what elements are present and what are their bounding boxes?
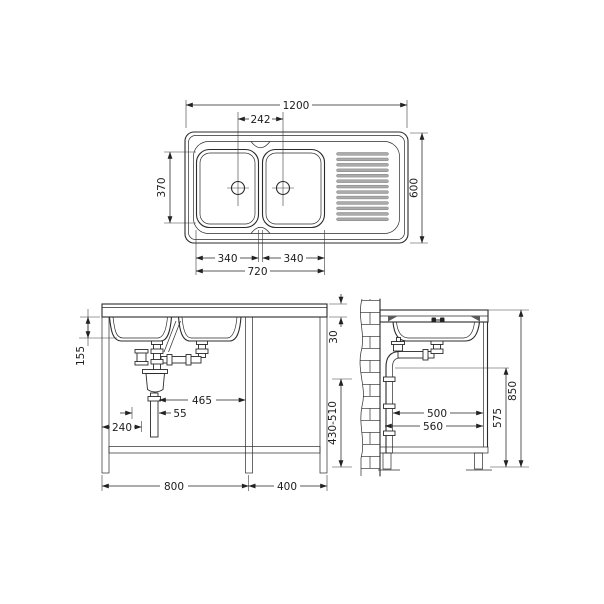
dim-bowl-height: 155 <box>75 309 117 366</box>
dim-label-340-left: 340 <box>217 253 237 265</box>
dim-label-560: 560 <box>423 421 443 433</box>
plan-view: 1200 242 370 600 340 <box>156 99 428 279</box>
dim-plan-width: 1200 <box>186 99 407 129</box>
bottle-trap <box>146 374 165 393</box>
dim-bowl-widths: 340 340 720 <box>196 230 325 278</box>
dim-label-370: 370 <box>156 177 168 197</box>
front-worktop <box>102 304 327 317</box>
front-bottom-shelf <box>109 447 320 454</box>
rim-waist-bottom <box>251 227 270 233</box>
drainboard-ribs <box>337 153 389 221</box>
dim-label-800: 800 <box>164 481 184 493</box>
side-plinth-leg-right <box>475 453 483 469</box>
dim-plan-depth: 600 <box>409 133 429 243</box>
side-view: 500 560 575 850 <box>360 299 529 476</box>
side-plinth-leg-left <box>383 453 391 469</box>
dim-trap-wall-distance: 240 <box>102 421 142 434</box>
dim-label-242: 242 <box>250 114 270 126</box>
front-plumbing <box>135 321 208 437</box>
dim-label-400: 400 <box>277 481 297 493</box>
dim-cabinet-widths: 800 400 <box>102 475 327 493</box>
side-bowl <box>393 322 480 341</box>
rim-clamp-right <box>471 317 480 322</box>
side-plumbing <box>384 338 444 454</box>
dim-label-600: 600 <box>409 178 421 198</box>
side-bottom-shelf <box>380 447 488 453</box>
front-divider-panel <box>246 317 253 473</box>
trap-flange <box>143 370 168 374</box>
front-right-side-panel <box>320 317 327 473</box>
left-bowl <box>197 150 259 228</box>
dim-label-1200: 1200 <box>283 100 310 112</box>
front-bowls <box>110 317 242 341</box>
left-tailpiece <box>154 345 161 371</box>
dim-label-720: 720 <box>247 266 267 278</box>
dim-label-430-510: 430-510 <box>327 401 339 445</box>
dim-label-465: 465 <box>192 395 212 407</box>
right-bowl-inner <box>266 153 321 224</box>
dim-rim-height: 30 <box>328 294 347 344</box>
dim-worktop-height: 850 <box>470 310 529 467</box>
sink-installation-drawing: 1200 242 370 600 340 <box>0 0 604 604</box>
rim-waist-top <box>251 142 270 148</box>
dim-label-340-right: 340 <box>283 253 303 265</box>
front-left-side-panel <box>102 317 109 473</box>
technical-drawing-page: 1200 242 370 600 340 <box>0 0 604 604</box>
overflow-elbow <box>137 352 146 362</box>
right-bowl <box>263 150 325 228</box>
front-view: 155 30 465 55 240 <box>75 294 352 493</box>
dim-label-575: 575 <box>492 408 504 428</box>
vent-valve <box>394 344 403 351</box>
tap-holes <box>227 112 294 206</box>
dim-label-155: 155 <box>75 346 87 366</box>
dim-depth: 560 <box>385 420 483 433</box>
dim-outlet-height-range: 430-510 <box>327 379 352 467</box>
dim-label-240: 240 <box>112 422 132 434</box>
dim-bowl-depth: 370 <box>156 152 196 223</box>
side-drain-flange <box>431 341 443 345</box>
left-drain-flange <box>152 341 163 345</box>
side-horizontal-pipe <box>398 352 434 359</box>
left-bowl-inner <box>200 153 255 224</box>
dim-pipe-distance: 500 <box>393 407 483 420</box>
right-drain-flange <box>197 341 208 345</box>
dim-label-30: 30 <box>328 330 340 343</box>
dim-tap-spacing: 242 <box>238 113 283 126</box>
dim-label-850: 850 <box>507 381 519 401</box>
rim-clamp-left <box>388 317 397 322</box>
dim-label-55: 55 <box>173 408 186 420</box>
dim-drain-offset: 465 <box>159 394 246 407</box>
dim-label-500: 500 <box>427 408 447 420</box>
